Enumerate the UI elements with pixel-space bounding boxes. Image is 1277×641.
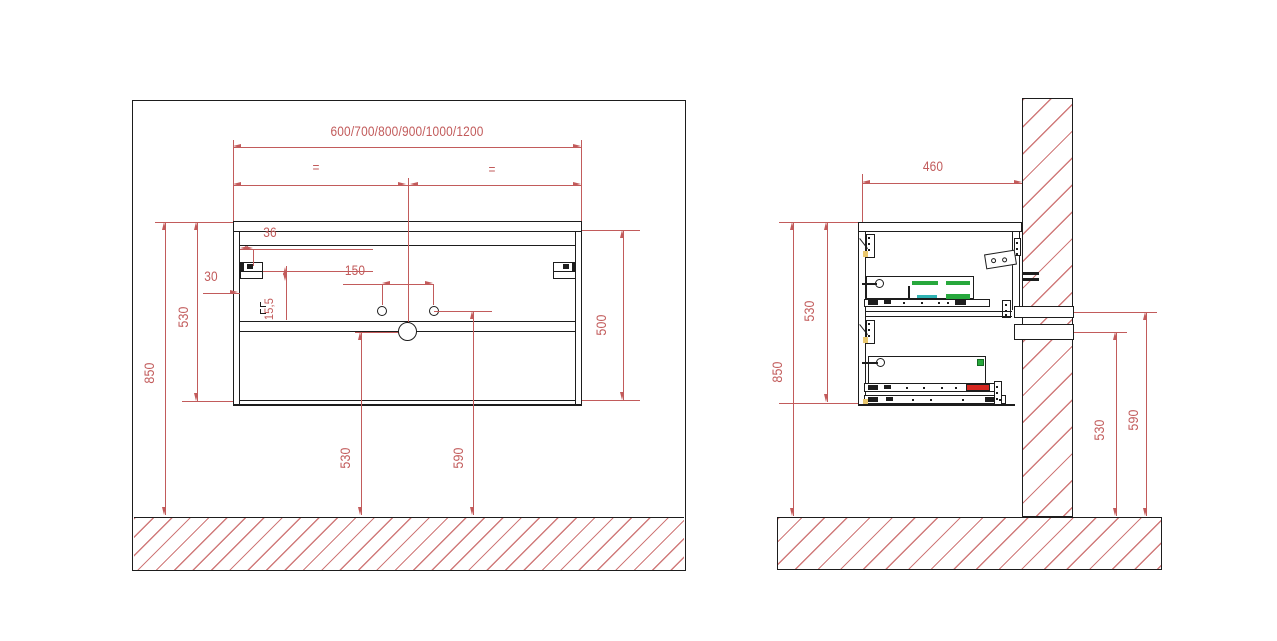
dimension-line [582, 230, 640, 231]
floor-hatch-side [777, 517, 1162, 570]
slide-clip-green [912, 281, 938, 285]
drawing-line [862, 362, 878, 364]
screw-dot [868, 243, 870, 245]
arrow-icon [194, 222, 198, 230]
arrow-icon [1113, 332, 1117, 340]
dimension-line [263, 271, 373, 272]
hardware-block [886, 397, 893, 401]
drawing-line [866, 316, 1012, 317]
dimension-line [473, 311, 474, 515]
dimension-line [434, 311, 492, 312]
dim-label-36: 36 [254, 225, 286, 241]
dimension-line [233, 140, 234, 221]
drawing-line [1023, 278, 1039, 281]
hardware-block [572, 263, 576, 271]
arrow-icon [573, 144, 581, 148]
arrow-icon [194, 393, 198, 401]
screw-dot [1005, 310, 1007, 312]
hardware-block [985, 397, 995, 402]
drawing-line [554, 271, 575, 272]
screw-dot [868, 323, 870, 325]
dim-label-590-pipe: 590 [1126, 400, 1142, 440]
dim-label-15-5: 15,5 [261, 289, 277, 329]
arrow-icon [620, 392, 624, 400]
screw-dot [996, 386, 998, 388]
arrow-icon [245, 246, 253, 250]
dim-label-530-front: 530 [176, 297, 192, 337]
dimension-line [1073, 332, 1127, 333]
dim-label-equal-right: = [479, 162, 505, 178]
dim-label-530-pipe: 530 [1092, 410, 1108, 450]
screw-dot [938, 302, 940, 304]
hardware-block [955, 300, 966, 305]
dim-label-530-bottom: 530 [338, 438, 354, 478]
dim-label-530-side: 530 [802, 291, 818, 331]
arrow-icon [790, 222, 794, 230]
dim-label-460: 460 [917, 159, 949, 175]
dimension-line [581, 140, 582, 221]
dimension-line [408, 178, 409, 332]
dim-label-850-front: 850 [142, 353, 158, 393]
dimension-line [862, 183, 1022, 184]
dimension-line [165, 222, 166, 515]
dimension-line [233, 147, 581, 148]
hardware-block [240, 263, 244, 271]
cabinet-right-wall [575, 232, 582, 405]
hardware-block [884, 385, 891, 389]
dimension-line [253, 249, 254, 266]
arrow-icon [573, 182, 581, 186]
dimension-line [582, 400, 640, 401]
dimension-line [240, 249, 373, 250]
slide-lock-red [966, 384, 990, 391]
screw-dot [906, 387, 908, 389]
screw-dot [1016, 242, 1018, 244]
hardware-block [868, 397, 878, 402]
drawing-line [1023, 272, 1039, 275]
screw-dot [868, 335, 870, 337]
dimension-line [233, 185, 581, 186]
drawing-line [908, 286, 910, 298]
screw-dot [1016, 253, 1018, 255]
drawing-line [858, 404, 1015, 406]
bracket-screw-hole [1002, 257, 1008, 263]
arrow-icon [382, 281, 390, 285]
screw-dot [1005, 314, 1007, 316]
hardware-block [868, 300, 878, 305]
cam-fitting-yellow [863, 337, 868, 343]
arrow-icon [398, 182, 406, 186]
arrow-icon [410, 182, 418, 186]
dimension-line [1116, 332, 1117, 516]
screw-dot [912, 399, 914, 401]
screw-dot [1005, 304, 1007, 306]
arrow-icon [790, 508, 794, 516]
hardware-block [884, 300, 891, 304]
screw-dot [868, 237, 870, 239]
arrow-icon [230, 290, 238, 294]
arrow-icon [233, 144, 241, 148]
arrow-icon [233, 182, 241, 186]
dimension-line [827, 222, 828, 402]
dim-label-width-series: 600/700/800/900/1000/1200 [301, 124, 512, 140]
arrow-icon [162, 507, 166, 515]
arrow-icon [824, 222, 828, 230]
screw-dot [1016, 248, 1018, 250]
drawing-line [241, 271, 262, 272]
screw-dot [996, 392, 998, 394]
arrow-icon [470, 311, 474, 319]
screw-dot [962, 399, 964, 401]
lower-drawer-side [868, 356, 986, 384]
screw-dot [921, 302, 923, 304]
screw-dot [930, 399, 932, 401]
floor-hatch-front [134, 517, 684, 570]
drawing-line [233, 404, 582, 406]
technical-drawing-canvas: 600/700/800/900/1000/1200 = = 36 30 150 … [0, 0, 1277, 641]
countertop-side [858, 222, 1022, 232]
dim-label-850-side: 850 [770, 352, 786, 392]
dim-label-30: 30 [195, 269, 227, 285]
pipe-upper [1014, 306, 1074, 318]
slide-clip-green [946, 281, 970, 285]
arrow-icon [620, 230, 624, 238]
dimension-line [623, 230, 624, 400]
arrow-icon [358, 507, 362, 515]
screw-dot [955, 387, 957, 389]
dimension-line [382, 284, 383, 305]
screw-dot [947, 302, 949, 304]
dim-label-equal-left: = [303, 160, 329, 176]
slide-clip-green [946, 294, 970, 299]
dim-label-500: 500 [594, 305, 610, 345]
arrow-icon [162, 222, 166, 230]
dimension-line [197, 222, 198, 401]
drawing-line [240, 400, 576, 401]
cam-fitting-yellow [863, 251, 868, 257]
screw-dot [923, 387, 925, 389]
dimension-line [433, 284, 434, 305]
arrow-icon [470, 507, 474, 515]
upper-slide-rail [864, 299, 990, 307]
arrow-icon [1113, 508, 1117, 516]
arrow-icon [1143, 312, 1147, 320]
drain-hole [398, 322, 417, 341]
arrow-icon [425, 281, 433, 285]
arrow-icon [862, 180, 870, 184]
dimension-line [182, 401, 233, 402]
screw-dot [941, 387, 943, 389]
dimension-line [361, 332, 362, 515]
dimension-line [793, 222, 794, 516]
handle-hole-left [377, 306, 387, 316]
hardware-block [868, 385, 878, 390]
slide-clip-cyan [917, 295, 937, 298]
arrow-icon [824, 394, 828, 402]
arrow-icon [1143, 508, 1147, 516]
arrow-icon [358, 332, 362, 340]
arrow-icon [1014, 180, 1022, 184]
cabinet-left-wall [233, 232, 240, 405]
arrow-icon [283, 273, 287, 281]
screw-dot [868, 249, 870, 251]
bracket-screw-hole [991, 258, 997, 264]
hardware-block [563, 264, 569, 269]
dimension-line [1146, 312, 1147, 516]
screw-dot [999, 399, 1001, 401]
dim-label-590-bottom: 590 [451, 438, 467, 478]
drawing-line [862, 283, 877, 285]
screw-dot [996, 398, 998, 400]
pipe-lower [1014, 324, 1074, 340]
drawer-clip-green [977, 359, 984, 366]
screw-dot [868, 329, 870, 331]
dimension-line [779, 403, 858, 404]
drawing-line [866, 311, 1012, 312]
cabinet-front-panel [858, 232, 866, 405]
screw-dot [903, 302, 905, 304]
